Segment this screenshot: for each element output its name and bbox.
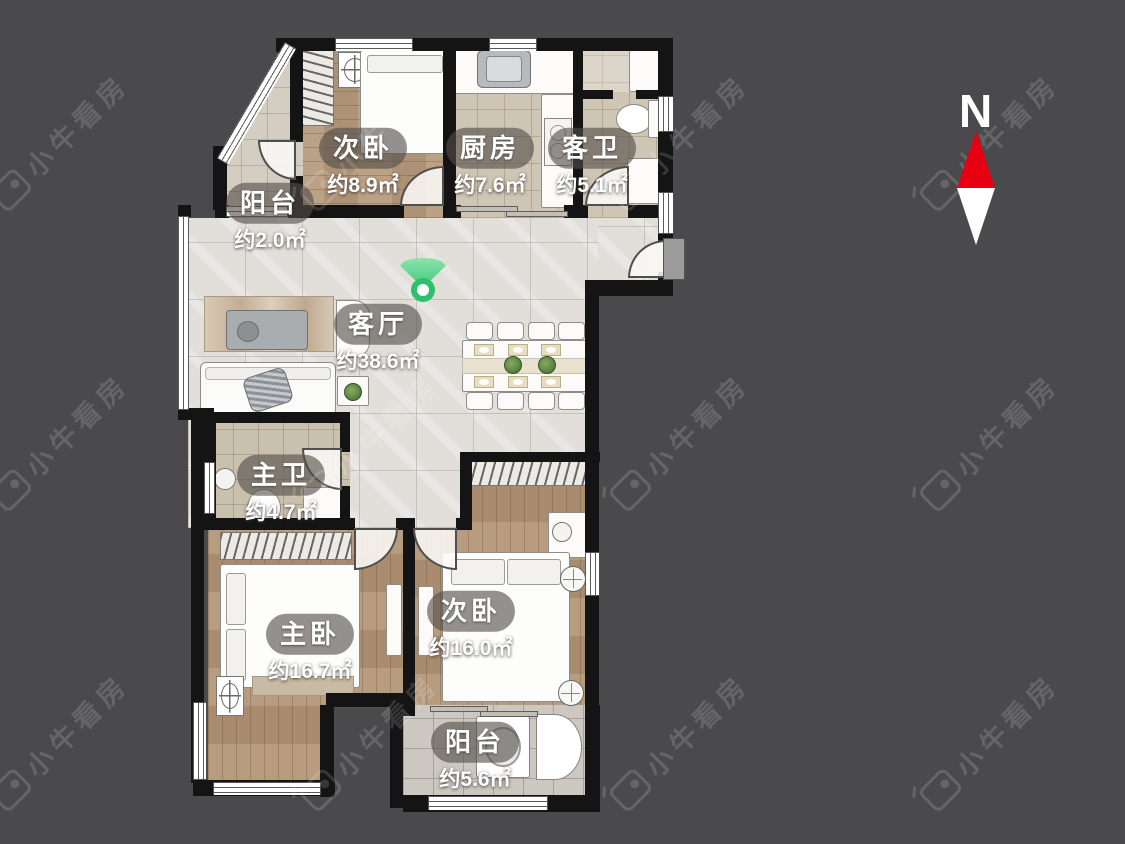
wall bbox=[443, 38, 456, 218]
floorplan-image: 次卧 约8.9㎡ 厨房 约7.6㎡ 客卫 约5.1㎡ 阳台 约2.0㎡ 客厅 约… bbox=[0, 0, 1125, 844]
dining-chair bbox=[497, 392, 524, 410]
compass-needle-south-icon bbox=[957, 188, 995, 245]
dining-chair bbox=[466, 392, 493, 410]
window bbox=[213, 782, 321, 795]
wall bbox=[585, 280, 599, 720]
dining-chair bbox=[528, 392, 555, 410]
pillow bbox=[367, 55, 443, 73]
viewpoint-dot-icon bbox=[411, 278, 435, 302]
pillow bbox=[451, 559, 505, 585]
placemat bbox=[541, 376, 561, 388]
pillow bbox=[226, 573, 246, 625]
wall bbox=[204, 412, 350, 423]
compass-north-label: N bbox=[959, 84, 992, 138]
wall bbox=[588, 280, 673, 296]
dining-chair bbox=[558, 322, 585, 340]
window bbox=[178, 216, 189, 410]
placemat bbox=[508, 344, 528, 356]
armchair bbox=[336, 300, 370, 358]
placemat bbox=[474, 344, 494, 356]
window bbox=[428, 796, 548, 810]
compass-needle-north-icon bbox=[957, 131, 995, 188]
placemat bbox=[508, 376, 528, 388]
pillow bbox=[226, 629, 246, 681]
floor-drain-icon bbox=[216, 676, 244, 716]
plant bbox=[538, 356, 556, 374]
placemat bbox=[541, 344, 561, 356]
shower-head-icon bbox=[214, 468, 236, 490]
slim-cabinet bbox=[418, 586, 434, 656]
pillow bbox=[507, 559, 561, 585]
slim-cabinet bbox=[386, 584, 402, 656]
bed bbox=[442, 552, 570, 702]
toilet bbox=[616, 104, 652, 134]
dining-chair bbox=[558, 392, 585, 410]
window bbox=[335, 38, 413, 51]
washing-machine bbox=[476, 716, 530, 778]
placemat bbox=[474, 376, 494, 388]
window bbox=[489, 38, 537, 51]
wall bbox=[581, 90, 613, 99]
wall bbox=[288, 205, 404, 218]
plant bbox=[504, 356, 522, 374]
wall bbox=[390, 705, 403, 808]
table-runner bbox=[462, 358, 588, 374]
bed bbox=[220, 564, 360, 688]
wall bbox=[340, 486, 350, 520]
dining-chair bbox=[497, 322, 524, 340]
stove bbox=[544, 118, 572, 166]
window bbox=[193, 702, 206, 780]
tv-console bbox=[226, 310, 308, 350]
kitchen-sink bbox=[477, 50, 531, 88]
entry-door-leaf bbox=[663, 238, 685, 280]
wall bbox=[290, 176, 303, 218]
wardrobe bbox=[220, 532, 352, 560]
vent-icon bbox=[560, 566, 586, 592]
window bbox=[658, 192, 673, 234]
window bbox=[226, 206, 288, 217]
wall bbox=[191, 518, 355, 530]
wall bbox=[460, 452, 472, 522]
wall bbox=[403, 518, 415, 716]
window bbox=[658, 96, 673, 132]
sliding-door bbox=[480, 711, 538, 717]
dining-chair bbox=[466, 322, 493, 340]
window bbox=[585, 552, 599, 596]
wall bbox=[573, 38, 583, 218]
floorplan-viewer: { "watermark": { "text": "小牛看房" }, "comp… bbox=[0, 0, 1125, 844]
bed bbox=[360, 50, 448, 154]
dining-chair bbox=[528, 322, 555, 340]
desk-chair bbox=[552, 522, 572, 542]
vent-icon bbox=[558, 680, 584, 706]
panorama-viewpoint-marker[interactable] bbox=[398, 258, 448, 304]
wall bbox=[340, 412, 350, 452]
sliding-door bbox=[506, 211, 568, 217]
window bbox=[204, 462, 215, 514]
curtain-band bbox=[466, 458, 590, 486]
wall bbox=[326, 693, 406, 707]
plant bbox=[344, 383, 362, 401]
wall bbox=[460, 452, 600, 462]
